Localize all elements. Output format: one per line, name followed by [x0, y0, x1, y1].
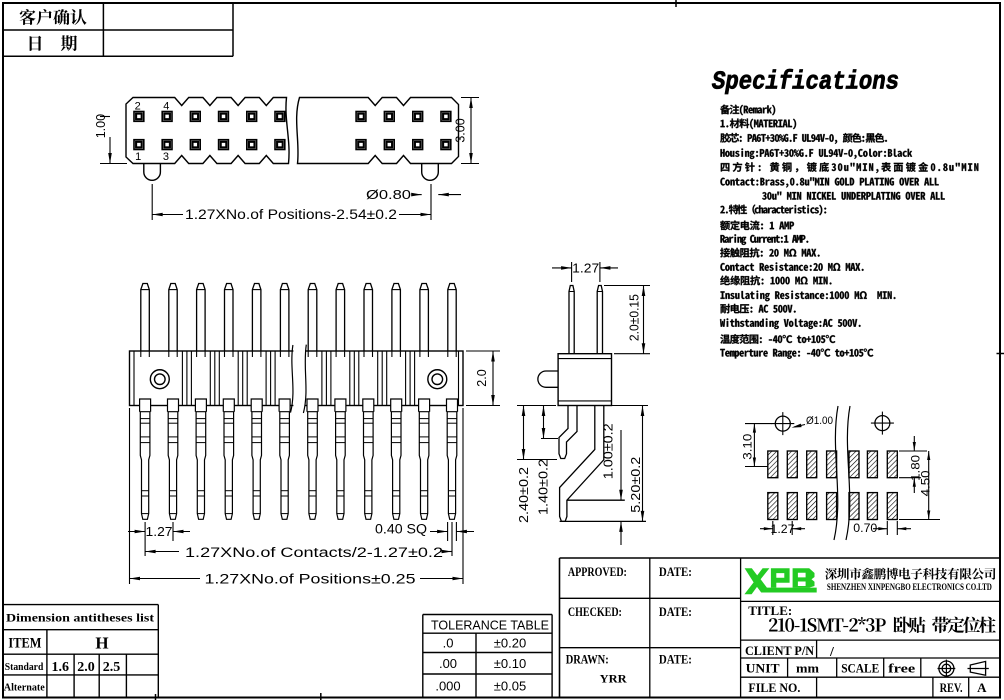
svg-text:1.00±0.2: 1.00±0.2 [602, 423, 616, 479]
svg-text:Standard: Standard [5, 662, 44, 673]
svg-text:TOLERANCE TABLE: TOLERANCE TABLE [431, 618, 549, 633]
svg-text:SHENZHEN XINPENGBO ELECTRONICS: SHENZHEN XINPENGBO ELECTRONICS CO.LTD [827, 583, 992, 593]
svg-text:Alternate: Alternate [4, 682, 46, 693]
svg-text:3: 3 [163, 151, 169, 163]
svg-text:.000: .000 [435, 679, 460, 694]
svg-text:.0: .0 [443, 636, 454, 651]
svg-text:4.50: 4.50 [921, 470, 933, 496]
svg-text:1.27: 1.27 [771, 524, 795, 536]
svg-text:2.0: 2.0 [77, 660, 95, 675]
svg-text:TITLE:: TITLE: [748, 603, 792, 618]
svg-text:DATE:: DATE: [659, 604, 692, 619]
svg-text:free: free [888, 662, 916, 676]
svg-text:1.27XNo.of Contacts/2-1.27±0.2: 1.27XNo.of Contacts/2-1.27±0.2 [185, 545, 443, 560]
svg-text:1.27XNo.of Positions±0.25: 1.27XNo.of Positions±0.25 [205, 571, 416, 586]
svg-text:H: H [95, 634, 108, 653]
svg-text:5.20±0.2: 5.20±0.2 [629, 457, 643, 513]
svg-text:0.40 SQ: 0.40 SQ [375, 522, 427, 537]
svg-text:2.5: 2.5 [103, 660, 121, 675]
svg-text:1.27XNo.of Positions-2.54±0.2: 1.27XNo.of Positions-2.54±0.2 [185, 207, 397, 222]
svg-text:2.0±0.15: 2.0±0.15 [628, 294, 642, 341]
svg-text:±0.20: ±0.20 [494, 636, 526, 651]
svg-text:1.6: 1.6 [51, 660, 69, 675]
svg-text:1.27: 1.27 [146, 524, 173, 539]
svg-text:2.0: 2.0 [475, 369, 489, 386]
svg-text:DRAWN:: DRAWN: [566, 652, 609, 667]
svg-text:Ø0.80: Ø0.80 [366, 187, 411, 202]
svg-text:A: A [977, 680, 987, 695]
svg-text:1.40±0.2: 1.40±0.2 [537, 459, 551, 515]
svg-text:REV.: REV. [940, 681, 963, 695]
svg-text:UNIT: UNIT [746, 662, 781, 676]
svg-text:4: 4 [163, 101, 169, 113]
svg-text:FILE NO.: FILE NO. [748, 681, 800, 695]
svg-text:±0.05: ±0.05 [494, 679, 526, 694]
svg-text:.00: .00 [439, 656, 457, 671]
svg-text:0.70: 0.70 [853, 523, 877, 535]
svg-text:APPROVED:: APPROVED: [568, 564, 627, 579]
svg-text:DATE:: DATE: [659, 564, 692, 579]
svg-text:YRR: YRR [600, 672, 627, 686]
svg-text:Ø1.00: Ø1.00 [806, 415, 833, 427]
svg-text:DATE:: DATE: [659, 652, 692, 667]
svg-text:1: 1 [135, 151, 141, 163]
svg-text:3.00: 3.00 [454, 118, 468, 142]
svg-text:1.00: 1.00 [94, 114, 108, 138]
svg-text:Dimension antitheses list: Dimension antitheses list [6, 611, 154, 625]
svg-text:ITEM: ITEM [8, 636, 41, 652]
svg-text:Specifications: Specifications [712, 67, 899, 97]
svg-text:CLIENT P/N: CLIENT P/N [745, 644, 814, 658]
svg-text:2.40±0.2: 2.40±0.2 [517, 467, 531, 523]
svg-text:mm: mm [796, 661, 819, 676]
svg-text:SCALE: SCALE [841, 662, 879, 676]
svg-text:CHECKED:: CHECKED: [568, 604, 622, 619]
svg-text:3.10: 3.10 [743, 434, 755, 460]
svg-text:2: 2 [135, 101, 141, 113]
svg-text:±0.10: ±0.10 [494, 656, 526, 671]
svg-text:1.27: 1.27 [572, 260, 599, 275]
